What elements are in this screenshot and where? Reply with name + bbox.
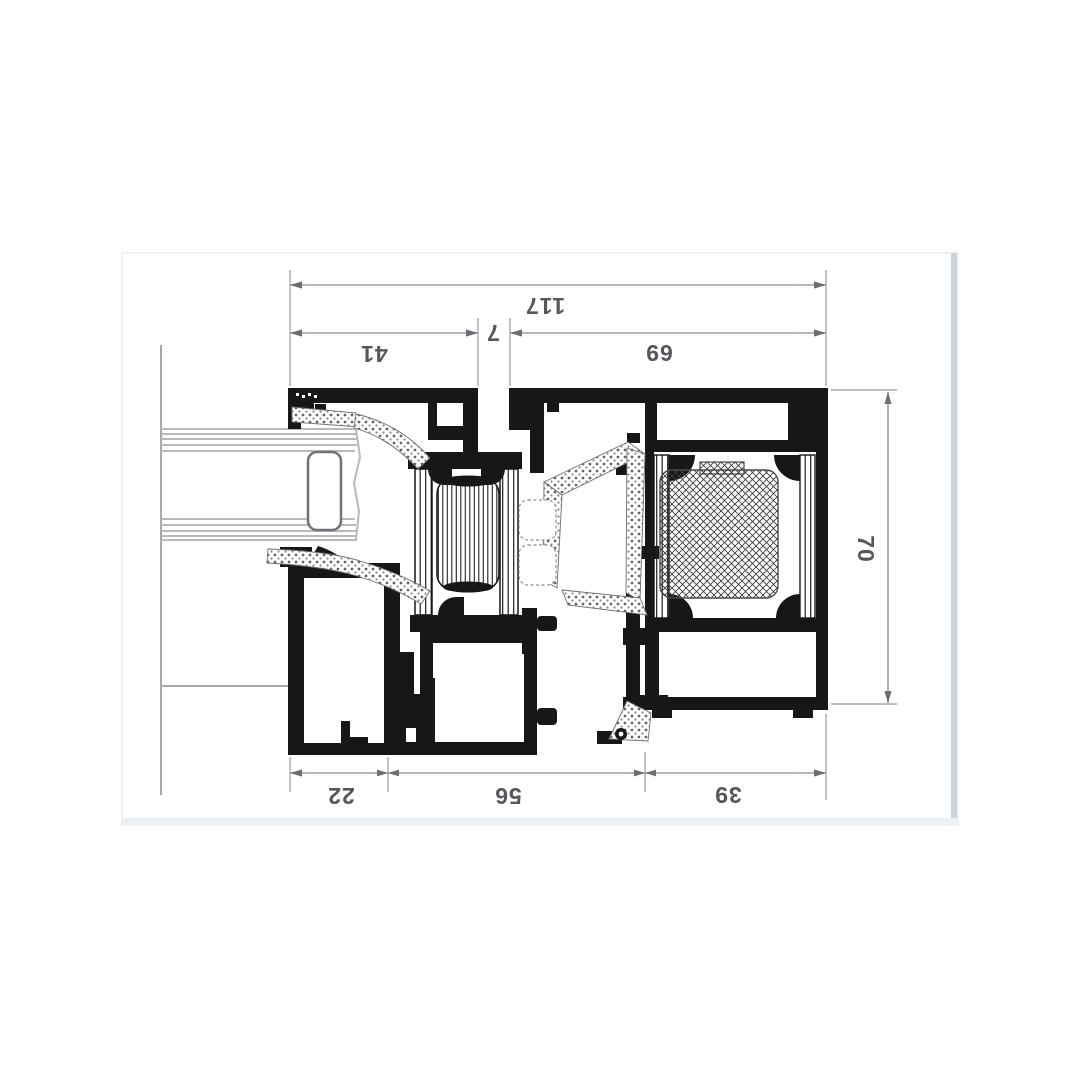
sash-lower-bar xyxy=(410,615,522,632)
screenshot-stage: 117 41 7 69 70 xyxy=(0,0,1080,1080)
barrel-cap-bottom xyxy=(443,582,493,593)
sill-box-tab-2 xyxy=(350,737,368,745)
dim-label-70: 70 xyxy=(853,535,879,563)
rf-flange-left xyxy=(623,628,645,645)
rf-lower-left-wall xyxy=(645,632,659,697)
sash-foot xyxy=(524,742,537,755)
dim-label-39: 39 xyxy=(714,782,742,808)
gasket-clip-2 xyxy=(627,433,640,443)
dim-label-41: 41 xyxy=(360,341,388,367)
sill-box-tab-1 xyxy=(341,721,350,745)
canvas-bottom-edge xyxy=(122,818,957,825)
insulation-block xyxy=(660,470,778,598)
sash-hook-upper xyxy=(537,616,557,631)
frame-upstand-nub xyxy=(547,403,559,412)
rf-foot-right xyxy=(793,710,813,718)
rf-foot-left xyxy=(652,710,672,718)
z-step-notch xyxy=(406,728,416,742)
rf-mid-bar xyxy=(645,618,828,632)
frame-top-cap xyxy=(509,388,828,403)
foam-insert-barrel xyxy=(437,478,499,590)
sash-right-wall-ext xyxy=(522,608,537,654)
technical-drawing-svg: 117 41 7 69 70 xyxy=(0,0,1080,1080)
dim-label-7: 7 xyxy=(486,320,500,346)
gasket-chamber-lower xyxy=(519,545,556,585)
sash-pocket-bottom xyxy=(428,426,478,440)
sash-hook-lower xyxy=(537,708,557,725)
barrel-cap-top xyxy=(443,476,493,487)
rf-thermal-strip-right xyxy=(800,455,815,618)
rf-right-wall xyxy=(816,403,828,710)
canvas-right-edge xyxy=(951,253,957,825)
dim-label-117: 117 xyxy=(525,293,565,319)
thermal-break-strip-right xyxy=(500,469,518,615)
panel-hollow-chamber xyxy=(308,452,341,530)
rf-inner-top-bar xyxy=(652,440,816,452)
gasket-curl-hole xyxy=(619,732,624,737)
dim-label-22: 22 xyxy=(327,783,355,809)
rf-bottom-bar xyxy=(623,697,828,710)
dim-label-56: 56 xyxy=(494,783,522,809)
sash-pocket-left-wall xyxy=(428,403,437,429)
dim-7: 7 xyxy=(486,320,500,346)
gasket-chamber-upper xyxy=(519,500,556,540)
dim-label-69: 69 xyxy=(645,340,673,366)
